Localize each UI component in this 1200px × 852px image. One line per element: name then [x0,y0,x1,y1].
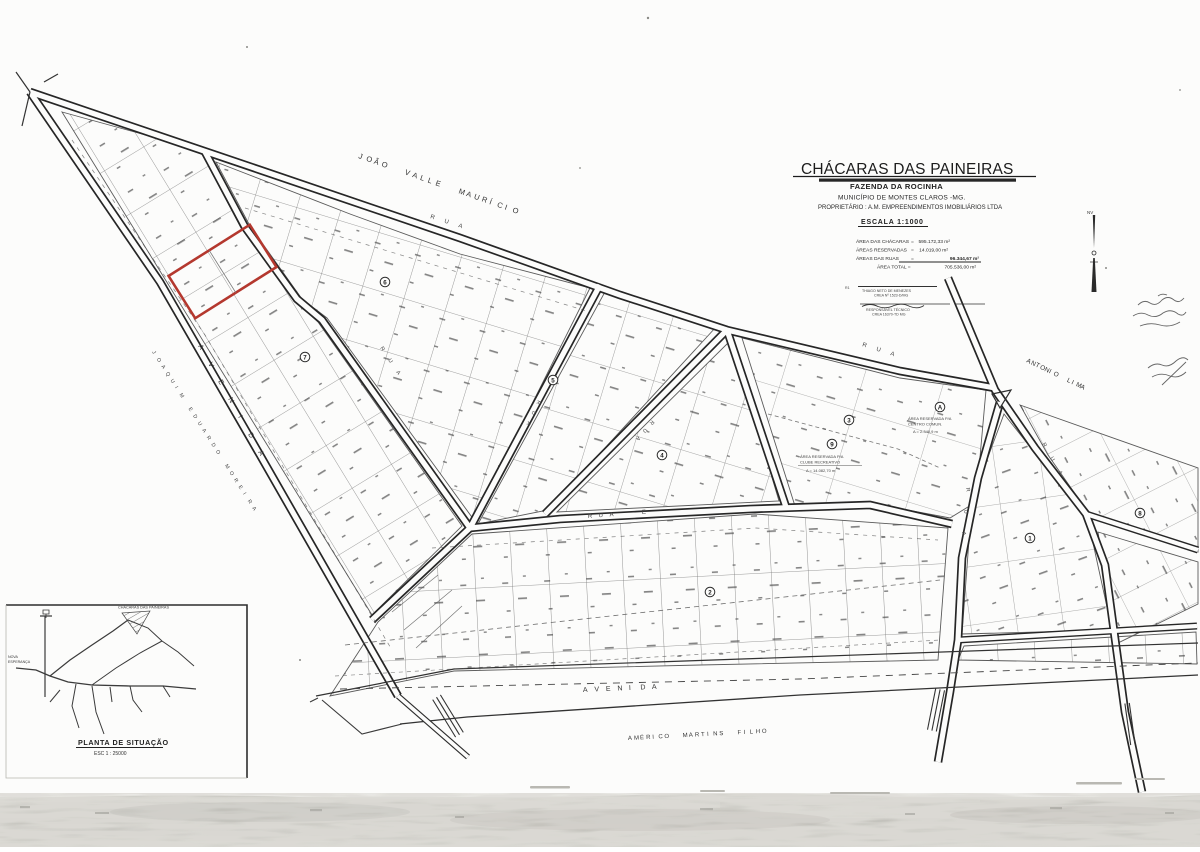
svg-text:CHÁCARAS DAS PAINEIRAS: CHÁCARAS DAS PAINEIRAS [118,606,169,610]
svg-text:595.172,33 m²: 595.172,33 m² [918,239,950,245]
svg-text:A = 14.082,70 m: A = 14.082,70 m [806,468,836,473]
svg-text:ÁREA RESERVADA P/A: ÁREA RESERVADA P/A [908,416,952,421]
svg-text:A: A [583,687,588,694]
svg-text:ÁREAS DAS RUAS: ÁREAS DAS RUAS [856,255,900,262]
svg-text:A = 2.340,9 m: A = 2.340,9 m [913,429,938,434]
svg-text:CREA Nº 1523-D/MG: CREA Nº 1523-D/MG [874,294,908,298]
svg-text:A: A [609,512,613,518]
svg-text:5: 5 [551,378,555,385]
svg-text:N: N [713,731,718,737]
svg-text:MUNICÍPIO DE MONTES CLAROS -MG: MUNICÍPIO DE MONTES CLAROS -MG. [838,193,965,202]
svg-text:96.344,67 m²: 96.344,67 m² [950,256,979,262]
svg-text:FAZENDA DA ROCINHA: FAZENDA DA ROCINHA [850,182,943,191]
svg-text:14.019,00 m²: 14.019,00 m² [919,248,948,254]
svg-text:7: 7 [303,355,307,362]
svg-text:=: = [911,240,914,245]
svg-text:PROPRIETÁRIO : A.M. EMPREENDIM: PROPRIETÁRIO : A.M. EMPREENDIMENTOS IMOB… [818,204,1002,211]
svg-text:H: H [756,729,761,735]
svg-text:E: E [642,510,646,516]
svg-text:É: É [640,734,644,741]
svg-text:A: A [628,736,632,742]
svg-text:A: A [689,733,693,739]
svg-text:3: 3 [847,418,851,425]
svg-text:CREA 16370-TD MG: CREA 16370-TD MG [872,313,906,317]
svg-text:CHÁCARAS DAS PAINEIRAS: CHÁCARAS DAS PAINEIRAS [801,161,1014,178]
svg-text:4: 4 [660,453,664,460]
svg-text:CENTRO COMUN.: CENTRO COMUN. [908,422,942,427]
svg-text:T: T [701,732,705,738]
svg-text:F: F [737,730,741,736]
svg-text:ESC 1 : 25000: ESC 1 : 25000 [94,751,127,757]
svg-text:N: N [617,685,622,692]
svg-text:ÁREA DAS CHÁCARAS: ÁREA DAS CHÁCARAS [856,238,910,245]
svg-text:ÁREA RESERVADA P/A: ÁREA RESERVADA P/A [800,454,844,459]
svg-text:M: M [683,733,688,739]
svg-text:2: 2 [708,590,712,597]
svg-text:=: = [911,257,914,262]
svg-text:ESCALA 1:1000: ESCALA 1:1000 [861,219,924,226]
svg-text:NV: NV [1087,210,1093,215]
svg-text:O: O [762,729,767,735]
svg-text:M: M [634,735,639,741]
svg-text:THIAGO NETO DE MENEZES: THIAGO NETO DE MENEZES [862,289,912,293]
svg-text:V: V [594,686,599,693]
svg-text:ÁREAS RESERVADAS: ÁREAS RESERVADAS [856,247,908,254]
svg-text:S: S [719,731,723,737]
svg-text:6: 6 [383,280,387,287]
svg-text:NOVA: NOVA [8,655,19,659]
svg-text:A: A [938,405,943,412]
svg-text:E: E [606,686,611,693]
svg-text:A: A [652,684,657,691]
svg-text:ÁREA TOTAL =: ÁREA TOTAL = [877,264,911,271]
svg-text:R1: R1 [845,286,850,290]
svg-text:ESPERANÇA: ESPERANÇA [8,660,31,664]
svg-text:RESPONSÁVEL TÉCNICO: RESPONSÁVEL TÉCNICO [866,307,910,312]
svg-text:9: 9 [830,442,834,449]
svg-text:=: = [911,249,914,254]
svg-text:CLUBE RECREATIVO: CLUBE RECREATIVO [800,460,840,465]
svg-text:O: O [664,734,669,740]
svg-text:D: D [640,684,645,691]
svg-text:8: 8 [1138,511,1142,518]
svg-text:PLANTA DE SITUAÇÃO: PLANTA DE SITUAÇÃO [78,738,169,747]
svg-text:1: 1 [1028,536,1032,543]
svg-text:705.536,00 m²: 705.536,00 m² [944,265,976,271]
svg-text:U: U [599,513,604,519]
svg-text:I: I [629,685,631,692]
